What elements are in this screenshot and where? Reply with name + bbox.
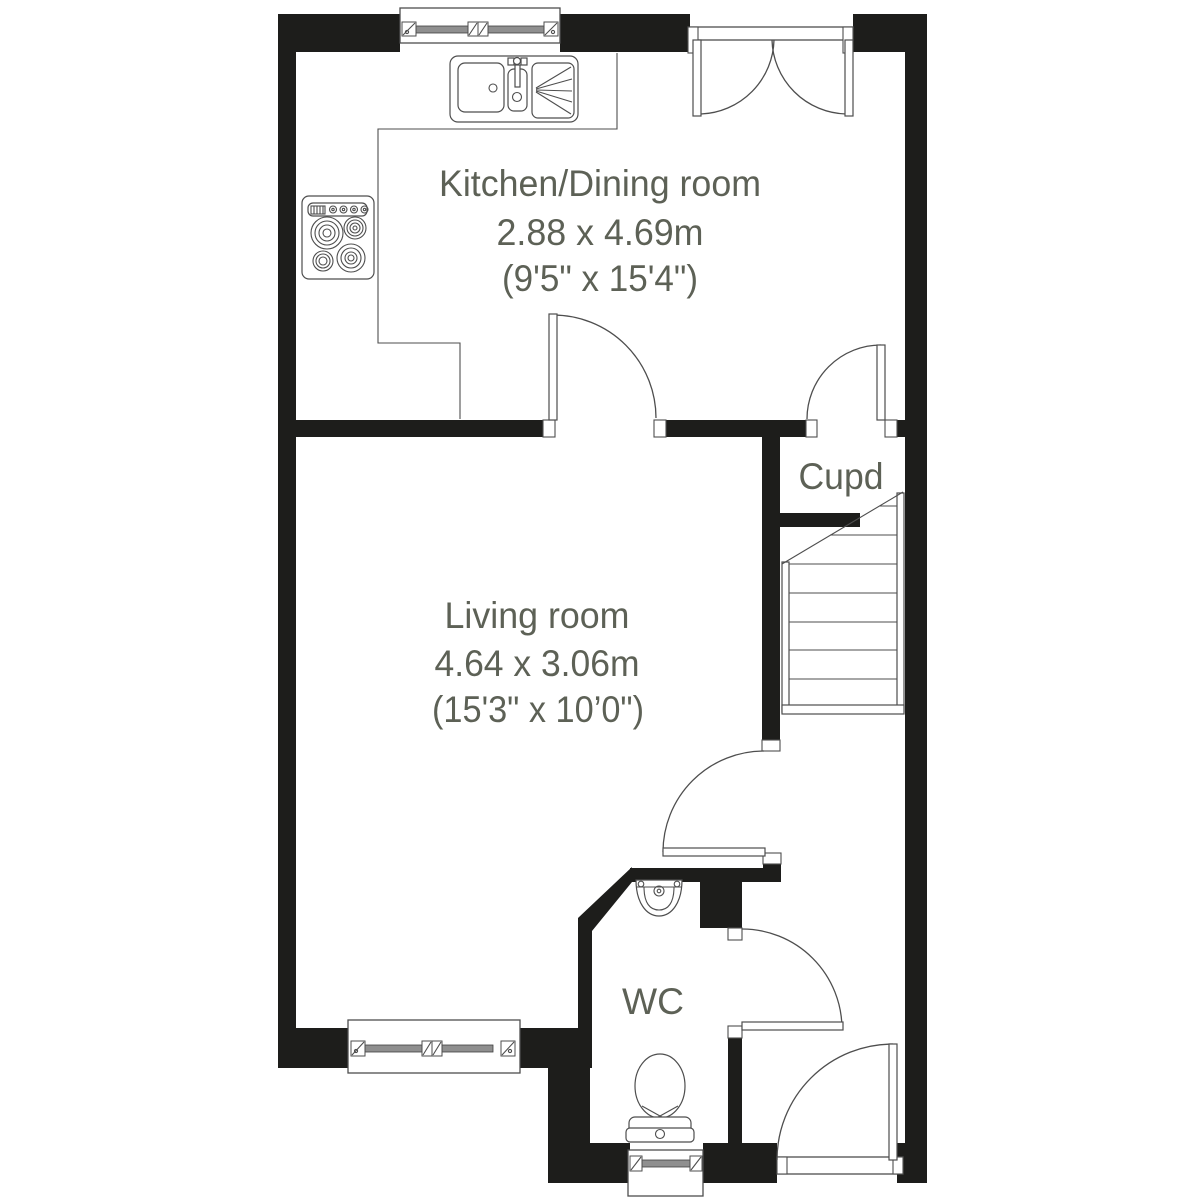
door-swing-arc <box>772 40 846 114</box>
floor-plan: Kitchen/Dining room 2.88 x 4.69m (9'5" x… <box>0 0 1200 1200</box>
jamb <box>654 420 666 437</box>
stair-bottom-step <box>782 705 904 714</box>
living-room-label: Living room <box>445 595 630 636</box>
jamb <box>728 1026 742 1038</box>
living-room-size-imperial: (15'3" x 10’0") <box>432 689 644 730</box>
door-leaf <box>845 40 853 116</box>
jamb <box>543 420 555 437</box>
door-swing-arc <box>742 929 842 1029</box>
wc-basin <box>636 880 682 916</box>
wc-toilet <box>626 1054 694 1142</box>
door-swing-arc <box>701 40 774 114</box>
wall-top-left <box>278 14 400 52</box>
wall-bottom-left-c <box>548 1028 592 1068</box>
wall-kitchen-living-a <box>296 420 543 437</box>
wall-cupboard-bottom <box>764 513 860 527</box>
wall-kitchen-living-b <box>665 420 806 437</box>
door-leaf <box>693 40 701 116</box>
door-sill <box>688 27 853 40</box>
window-glazing <box>642 1160 690 1167</box>
stair-stringer-right <box>897 493 904 712</box>
door-wc <box>742 929 843 1030</box>
door-leaf <box>877 345 885 420</box>
window-kitchen <box>400 8 560 43</box>
kitchen-size-imperial: (9'5" x 15'4") <box>502 258 698 299</box>
living-room-size-metric: 4.64 x 3.06m <box>435 643 640 684</box>
stair-break-line <box>782 492 903 564</box>
door-swing-arc <box>777 1044 893 1160</box>
kitchen-label: Kitchen/Dining room <box>439 163 761 204</box>
wall-top-middle <box>560 14 690 52</box>
front-door <box>777 1044 903 1174</box>
wall-bottom-left-b <box>517 1028 548 1068</box>
door-leaf <box>889 1044 897 1160</box>
stair-treads <box>789 506 897 679</box>
jamb <box>728 928 742 940</box>
wall-bottom-left-a <box>278 1028 348 1068</box>
door-leaf <box>549 314 557 420</box>
door-swing-arc <box>553 315 656 418</box>
door-swing-arc <box>663 751 764 852</box>
door-leaf <box>663 848 765 856</box>
jamb <box>763 853 781 864</box>
wc-label: WC <box>622 981 684 1022</box>
stair-stringer-left <box>782 562 789 712</box>
wall-left <box>278 14 296 1068</box>
wall-right <box>905 14 927 1183</box>
jamb <box>762 740 780 751</box>
toilet-bowl <box>635 1054 685 1118</box>
wall-wc-stub <box>700 882 742 928</box>
wall-bottom-wc-a <box>590 1143 630 1183</box>
kitchen-sink <box>450 56 578 122</box>
wall-living-hall <box>762 437 780 740</box>
cupboard-label: Cupd <box>799 456 884 497</box>
window-living <box>348 1020 520 1073</box>
door-sill <box>777 1157 903 1174</box>
door-cupboard <box>807 345 885 420</box>
door-leaf <box>742 1022 843 1030</box>
wall-bottom-wc-b <box>703 1143 777 1183</box>
window-wc <box>628 1150 703 1196</box>
jamb <box>885 420 897 437</box>
door-swing-arc <box>807 345 881 419</box>
door-living-hall <box>663 751 765 856</box>
wall-wc-right <box>728 1038 742 1143</box>
toilet-cistern-base <box>626 1128 694 1142</box>
stove-icon <box>302 196 374 279</box>
door-kitchen-living <box>549 314 656 420</box>
french-doors-kitchen <box>688 27 853 116</box>
wall-kitchen-living-c <box>897 420 905 437</box>
floor-plan-page: Kitchen/Dining room 2.88 x 4.69m (9'5" x… <box>0 0 1200 1200</box>
door-sill-cap <box>777 1157 787 1174</box>
wall-step <box>548 1068 590 1183</box>
jamb <box>806 420 817 437</box>
kitchen-size-metric: 2.88 x 4.69m <box>497 212 704 253</box>
